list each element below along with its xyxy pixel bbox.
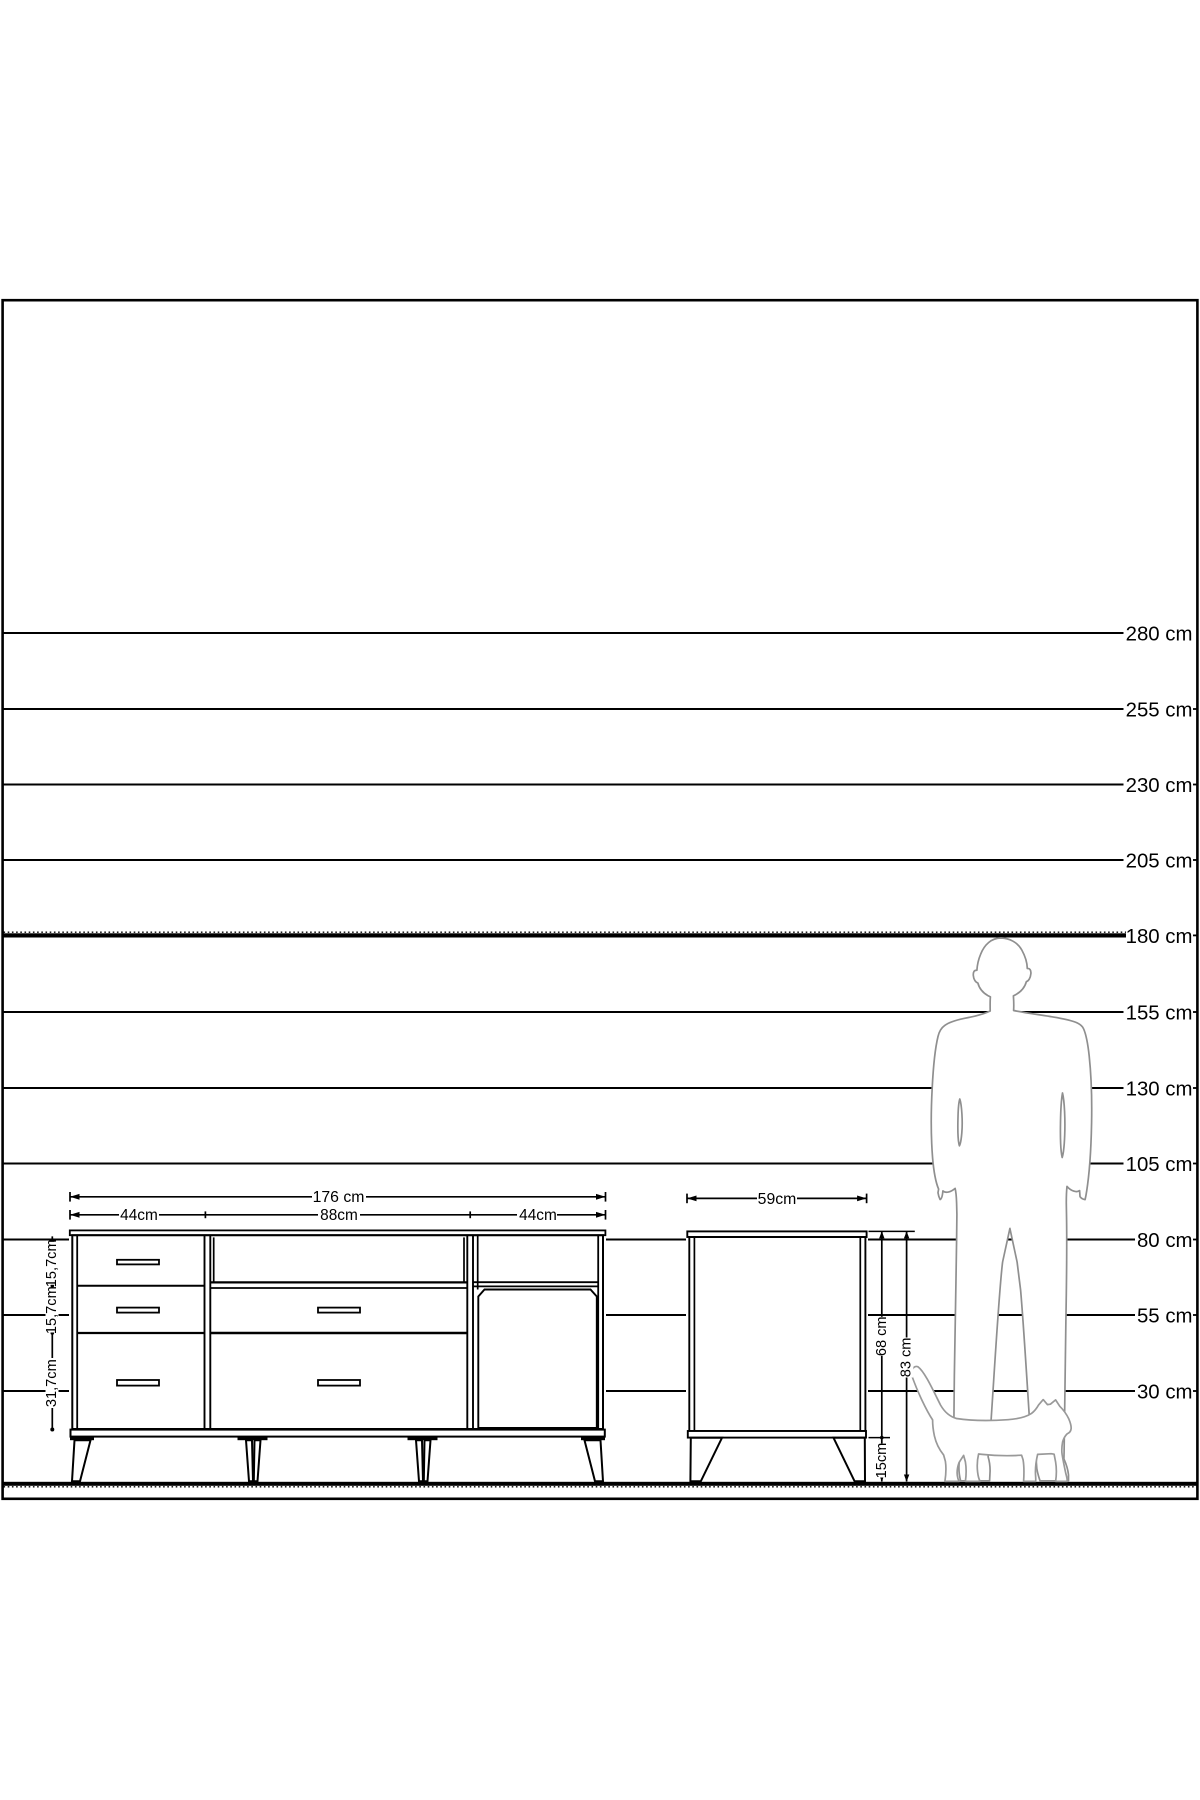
svg-text:55 cm: 55 cm bbox=[1137, 1306, 1193, 1328]
svg-text:30 cm: 30 cm bbox=[1137, 1382, 1193, 1404]
svg-text:176 cm: 176 cm bbox=[313, 1189, 365, 1206]
svg-text:88cm: 88cm bbox=[320, 1207, 358, 1224]
svg-text:15cm: 15cm bbox=[874, 1443, 890, 1479]
svg-text:230 cm: 230 cm bbox=[1126, 775, 1193, 797]
svg-text:31,7cm: 31,7cm bbox=[44, 1359, 60, 1407]
svg-text:68 cm: 68 cm bbox=[874, 1316, 890, 1356]
svg-text:205 cm: 205 cm bbox=[1126, 851, 1193, 873]
svg-text:155 cm: 155 cm bbox=[1126, 1003, 1193, 1025]
svg-text:105 cm: 105 cm bbox=[1126, 1154, 1193, 1176]
svg-text:80 cm: 80 cm bbox=[1137, 1230, 1193, 1252]
svg-text:280 cm: 280 cm bbox=[1126, 624, 1193, 646]
svg-text:15,7cm: 15,7cm bbox=[44, 1239, 60, 1287]
svg-text:44cm: 44cm bbox=[120, 1207, 158, 1224]
svg-text:44cm: 44cm bbox=[519, 1207, 557, 1224]
svg-text:15,7cm: 15,7cm bbox=[44, 1286, 60, 1334]
svg-text:180 cm: 180 cm bbox=[1126, 926, 1193, 948]
svg-text:130 cm: 130 cm bbox=[1126, 1079, 1193, 1101]
svg-text:59cm: 59cm bbox=[758, 1191, 797, 1208]
svg-text:255 cm: 255 cm bbox=[1126, 700, 1193, 722]
svg-text:83 cm: 83 cm bbox=[899, 1338, 915, 1378]
